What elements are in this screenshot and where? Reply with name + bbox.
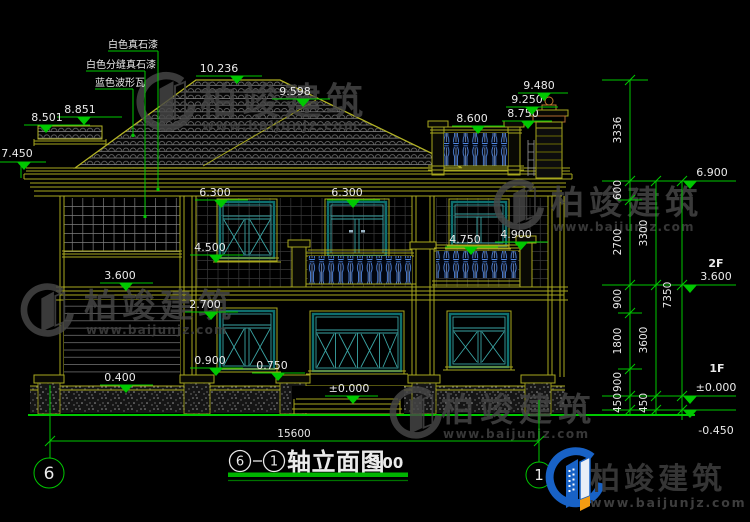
level-rail-center: 4.750 <box>449 233 481 246</box>
watermark-url: www.baijunjz.com <box>202 119 359 134</box>
level-sill-2f: 4.500 <box>194 241 226 254</box>
material-label: 蓝色波形瓦 <box>95 76 145 89</box>
axis-bubble-left: 6 <box>34 458 64 488</box>
brand-logo: 柏竣建筑 www.baijunjz.com <box>550 451 747 511</box>
level-ridge: 10.236 <box>200 62 239 75</box>
axis-number: 6 <box>44 464 55 484</box>
watermark-brand: 柏竣建筑 <box>441 390 597 429</box>
door-handle-left <box>349 230 353 233</box>
level-eave-far-left: 7.450 <box>1 147 33 160</box>
watermark-url: www.baijunjz.com <box>443 427 590 441</box>
dim-7350: 7350 <box>662 282 674 309</box>
cornice-band <box>24 168 572 196</box>
level-right-ground: -0.450 <box>698 424 733 437</box>
level-sill-1f-b: 0.750 <box>256 359 288 372</box>
level-lintel-1f: 2.700 <box>189 298 221 311</box>
brand-logo-url: www.baijunjz.com <box>590 495 746 510</box>
dim-2700: 2700 <box>612 229 624 256</box>
level-hip: 9.598 <box>279 85 311 98</box>
title-underline <box>228 473 408 478</box>
dim-900b: 900 <box>612 372 624 392</box>
dim-width: 15600 <box>277 428 310 440</box>
level-plinth: 0.400 <box>104 371 136 384</box>
watermark-url: www.baijunjz.com <box>86 323 228 337</box>
dim-3300: 3300 <box>638 220 650 247</box>
floor-label-1f: 1F <box>709 362 724 375</box>
material-label: 白色真石漆 <box>108 38 158 51</box>
floor-label-2f: 2F <box>708 257 723 270</box>
title-bubble-b: 1 <box>270 455 278 470</box>
wall-2f-left-grid <box>64 198 180 252</box>
dim-450a: 450 <box>612 393 624 413</box>
level-sill-1f-a: 0.900 <box>194 354 226 367</box>
right-dimension-chains: 3336 600 2700 900 1800 900 450 3300 3600… <box>602 75 692 420</box>
window-1f-right <box>443 311 515 370</box>
title-bubble-a: 6 <box>236 455 244 470</box>
watermark-1: 柏竣建筑 www.baijunjz.com <box>140 76 368 134</box>
level-rail-right: 4.900 <box>500 228 532 241</box>
level-canopy-eave: 8.501 <box>31 111 63 124</box>
level-eave-right: 6.300 <box>331 186 363 199</box>
dim-3600: 3600 <box>638 327 650 354</box>
house-elevation <box>24 80 695 415</box>
level-right-top: 6.900 <box>696 166 728 179</box>
window-1f-center <box>306 311 408 374</box>
axis-number: 1 <box>534 466 544 484</box>
drawing-title: 6 1 轴立面图 :100 <box>228 448 408 481</box>
brand-logo-text: 柏竣建筑 <box>590 462 726 497</box>
level-zero: ±0.000 <box>329 382 370 395</box>
title-scale: :100 <box>366 454 403 472</box>
level-floor-2f: 3.600 <box>104 269 136 282</box>
level-chimney-top: 9.480 <box>523 79 555 92</box>
dim-3336: 3336 <box>612 116 624 143</box>
door-handle-right <box>361 230 365 233</box>
dim-900a: 900 <box>612 289 624 309</box>
level-eave-left: 6.300 <box>199 186 231 199</box>
dim-450b: 450 <box>638 393 650 413</box>
cad-elevation-drawing: 柏竣建筑 www.baijunjz.com 柏竣建筑 www.baijunjz.… <box>0 0 750 522</box>
level-terrace-rail: 8.600 <box>456 112 488 125</box>
material-label: 白色分缝真石漆 <box>86 58 156 71</box>
level-canopy-top: 8.851 <box>64 103 96 116</box>
dim-1800: 1800 <box>612 328 624 355</box>
level-right-f2: 3.600 <box>700 270 732 283</box>
dim-600: 600 <box>612 180 624 200</box>
level-chimney-shoulder: 9.250 <box>511 93 543 106</box>
level-right-f1: ±0.000 <box>696 381 737 394</box>
